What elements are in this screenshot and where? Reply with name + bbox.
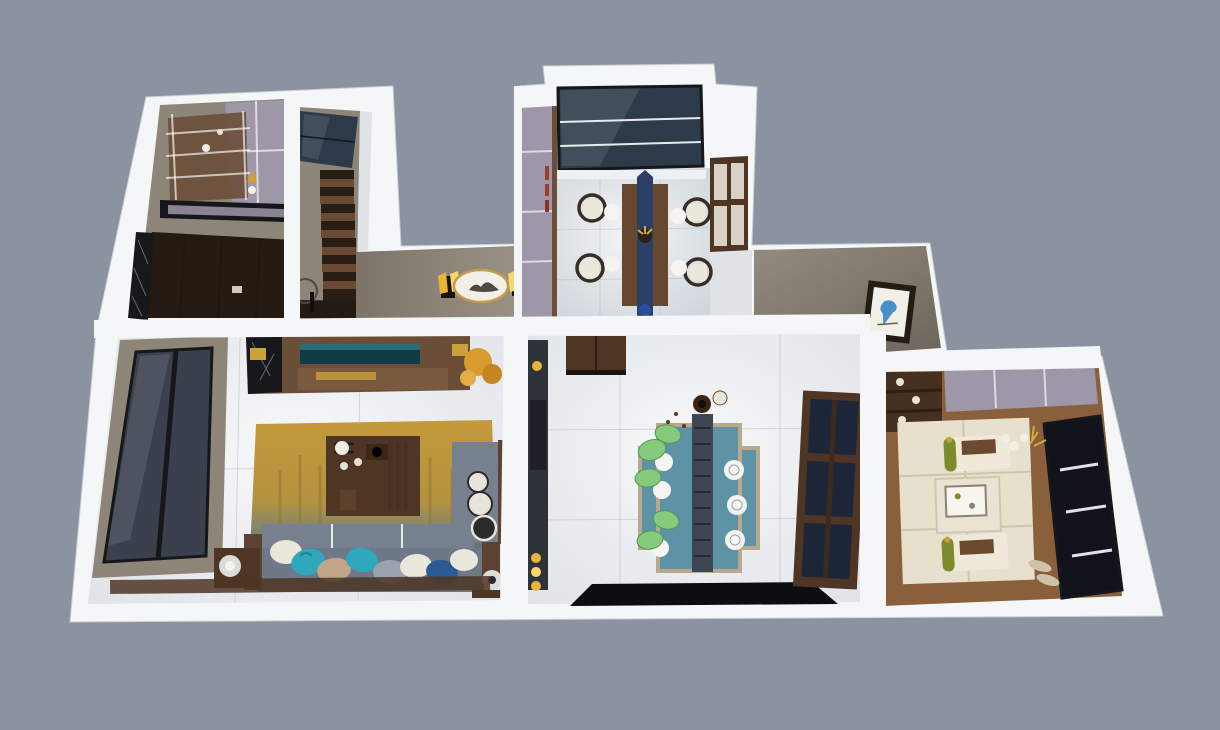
entry-door: [566, 336, 626, 375]
stair-tread: [321, 230, 355, 238]
stair-tread: [322, 264, 356, 272]
stair-tread: [320, 196, 354, 204]
chair-seat: [584, 200, 601, 217]
plate: [725, 530, 745, 550]
scatter-bean: [666, 420, 670, 424]
book-spine: [545, 200, 549, 212]
stair-riser: [322, 255, 356, 264]
stair-riser: [322, 238, 356, 247]
fruit-bowl: [532, 361, 542, 371]
place-setting: [670, 208, 686, 224]
dining-left-cabinet: [520, 106, 557, 318]
kitchen-strip: [528, 340, 548, 591]
tea-bowl: [372, 447, 382, 457]
floor-seat-bottom: [941, 532, 1009, 571]
gold-jar: [531, 567, 541, 577]
shelf-item: [217, 129, 223, 135]
hutch-panel: [731, 163, 744, 199]
display-cabinet: [793, 390, 867, 589]
stair-tread: [322, 247, 356, 255]
white-vase: [1020, 434, 1028, 442]
shelf-line: [884, 410, 942, 412]
chair-seat: [688, 204, 705, 221]
plate: [724, 460, 744, 480]
round-pillow: [468, 472, 488, 492]
stair-riser: [323, 272, 357, 281]
hutch-panel: [731, 205, 744, 245]
wall-living-kd: [500, 318, 528, 606]
hutch-panel: [714, 206, 727, 246]
wardrobe-item: [232, 286, 242, 293]
floorplan-svg: [0, 0, 1220, 730]
place-setting: [671, 260, 687, 276]
seat-pillow: [961, 439, 996, 455]
gold-jar: [531, 553, 541, 563]
door-threshold: [566, 370, 626, 375]
scatter-bean: [682, 424, 686, 428]
cabinet-seam: [520, 261, 552, 262]
stair-riser: [320, 170, 354, 179]
shelf-item: [202, 144, 210, 152]
gold-accent: [250, 348, 266, 360]
book-spine: [545, 166, 549, 180]
plate: [727, 495, 747, 515]
room-stair-hall: [293, 107, 360, 332]
wall-dining-left: [514, 86, 522, 318]
kitchen-appliance: [530, 400, 546, 470]
table-runner: [637, 177, 653, 315]
white-vase: [1009, 441, 1019, 451]
place-setting: [604, 204, 620, 220]
staircase: [320, 170, 357, 301]
seat-pillow: [959, 539, 994, 555]
glass-shelf-unit: [166, 111, 257, 202]
console-decor: [316, 372, 376, 380]
art-mat: [945, 485, 986, 516]
gold-jar: [531, 581, 541, 591]
room-tatami: [884, 360, 1122, 606]
room-entry-hall: [356, 246, 530, 324]
oval-artwork: [454, 270, 508, 302]
tv-glow: [300, 344, 420, 350]
tea-pot: [335, 441, 349, 455]
white-jar: [713, 391, 727, 405]
round-pillow: [468, 492, 492, 516]
shelf-wood: [168, 112, 248, 202]
dish: [896, 378, 904, 386]
coffee-table: [326, 436, 420, 516]
dark-vase-mouth: [698, 400, 706, 408]
chair-seat: [690, 264, 707, 281]
tea-cup: [340, 462, 348, 470]
cabinet-wood-edge: [552, 106, 557, 318]
plant-foliage: [460, 370, 476, 386]
stair-tread: [323, 281, 357, 289]
round-pillow: [472, 516, 496, 540]
room-kitchen-dining: [528, 332, 867, 606]
place-setting: [604, 256, 620, 272]
floorplan-render: [0, 0, 1220, 730]
tea-table: [935, 477, 1001, 533]
wall-kd-tatami: [860, 330, 886, 608]
stair-riser: [320, 187, 354, 196]
stair-tread: [321, 213, 355, 221]
hutch-panel: [714, 164, 727, 200]
chair-seat: [582, 260, 599, 277]
stair-tread: [320, 179, 354, 187]
bay-window: [556, 86, 706, 179]
wall-study-stair: [284, 99, 300, 332]
white-vase: [1002, 434, 1010, 442]
lamp-top: [225, 561, 235, 571]
cabinet-seam: [520, 151, 552, 152]
vase: [248, 186, 256, 194]
pillow: [450, 549, 478, 571]
tv-wall: [246, 333, 502, 394]
gold-accent: [452, 344, 468, 356]
scatter-bean: [674, 412, 678, 416]
dish: [912, 396, 920, 404]
shelf-line: [884, 390, 942, 392]
stair-riser: [323, 289, 357, 301]
stair-riser: [321, 204, 355, 213]
room-living: [88, 333, 512, 604]
book-spine: [545, 184, 549, 196]
floor-seat-top: [943, 433, 1011, 471]
bay-sill: [556, 170, 706, 179]
table-box: [340, 490, 356, 510]
plant-foliage: [482, 364, 502, 384]
dining-right-cabinet: [710, 156, 752, 318]
corridor-floor-sliver: [710, 250, 752, 318]
tea-cup: [354, 458, 362, 466]
dining-table: [622, 170, 668, 324]
stair-riser: [321, 221, 355, 230]
blue-porcelain: [639, 304, 651, 316]
floor-vase: [310, 292, 314, 312]
